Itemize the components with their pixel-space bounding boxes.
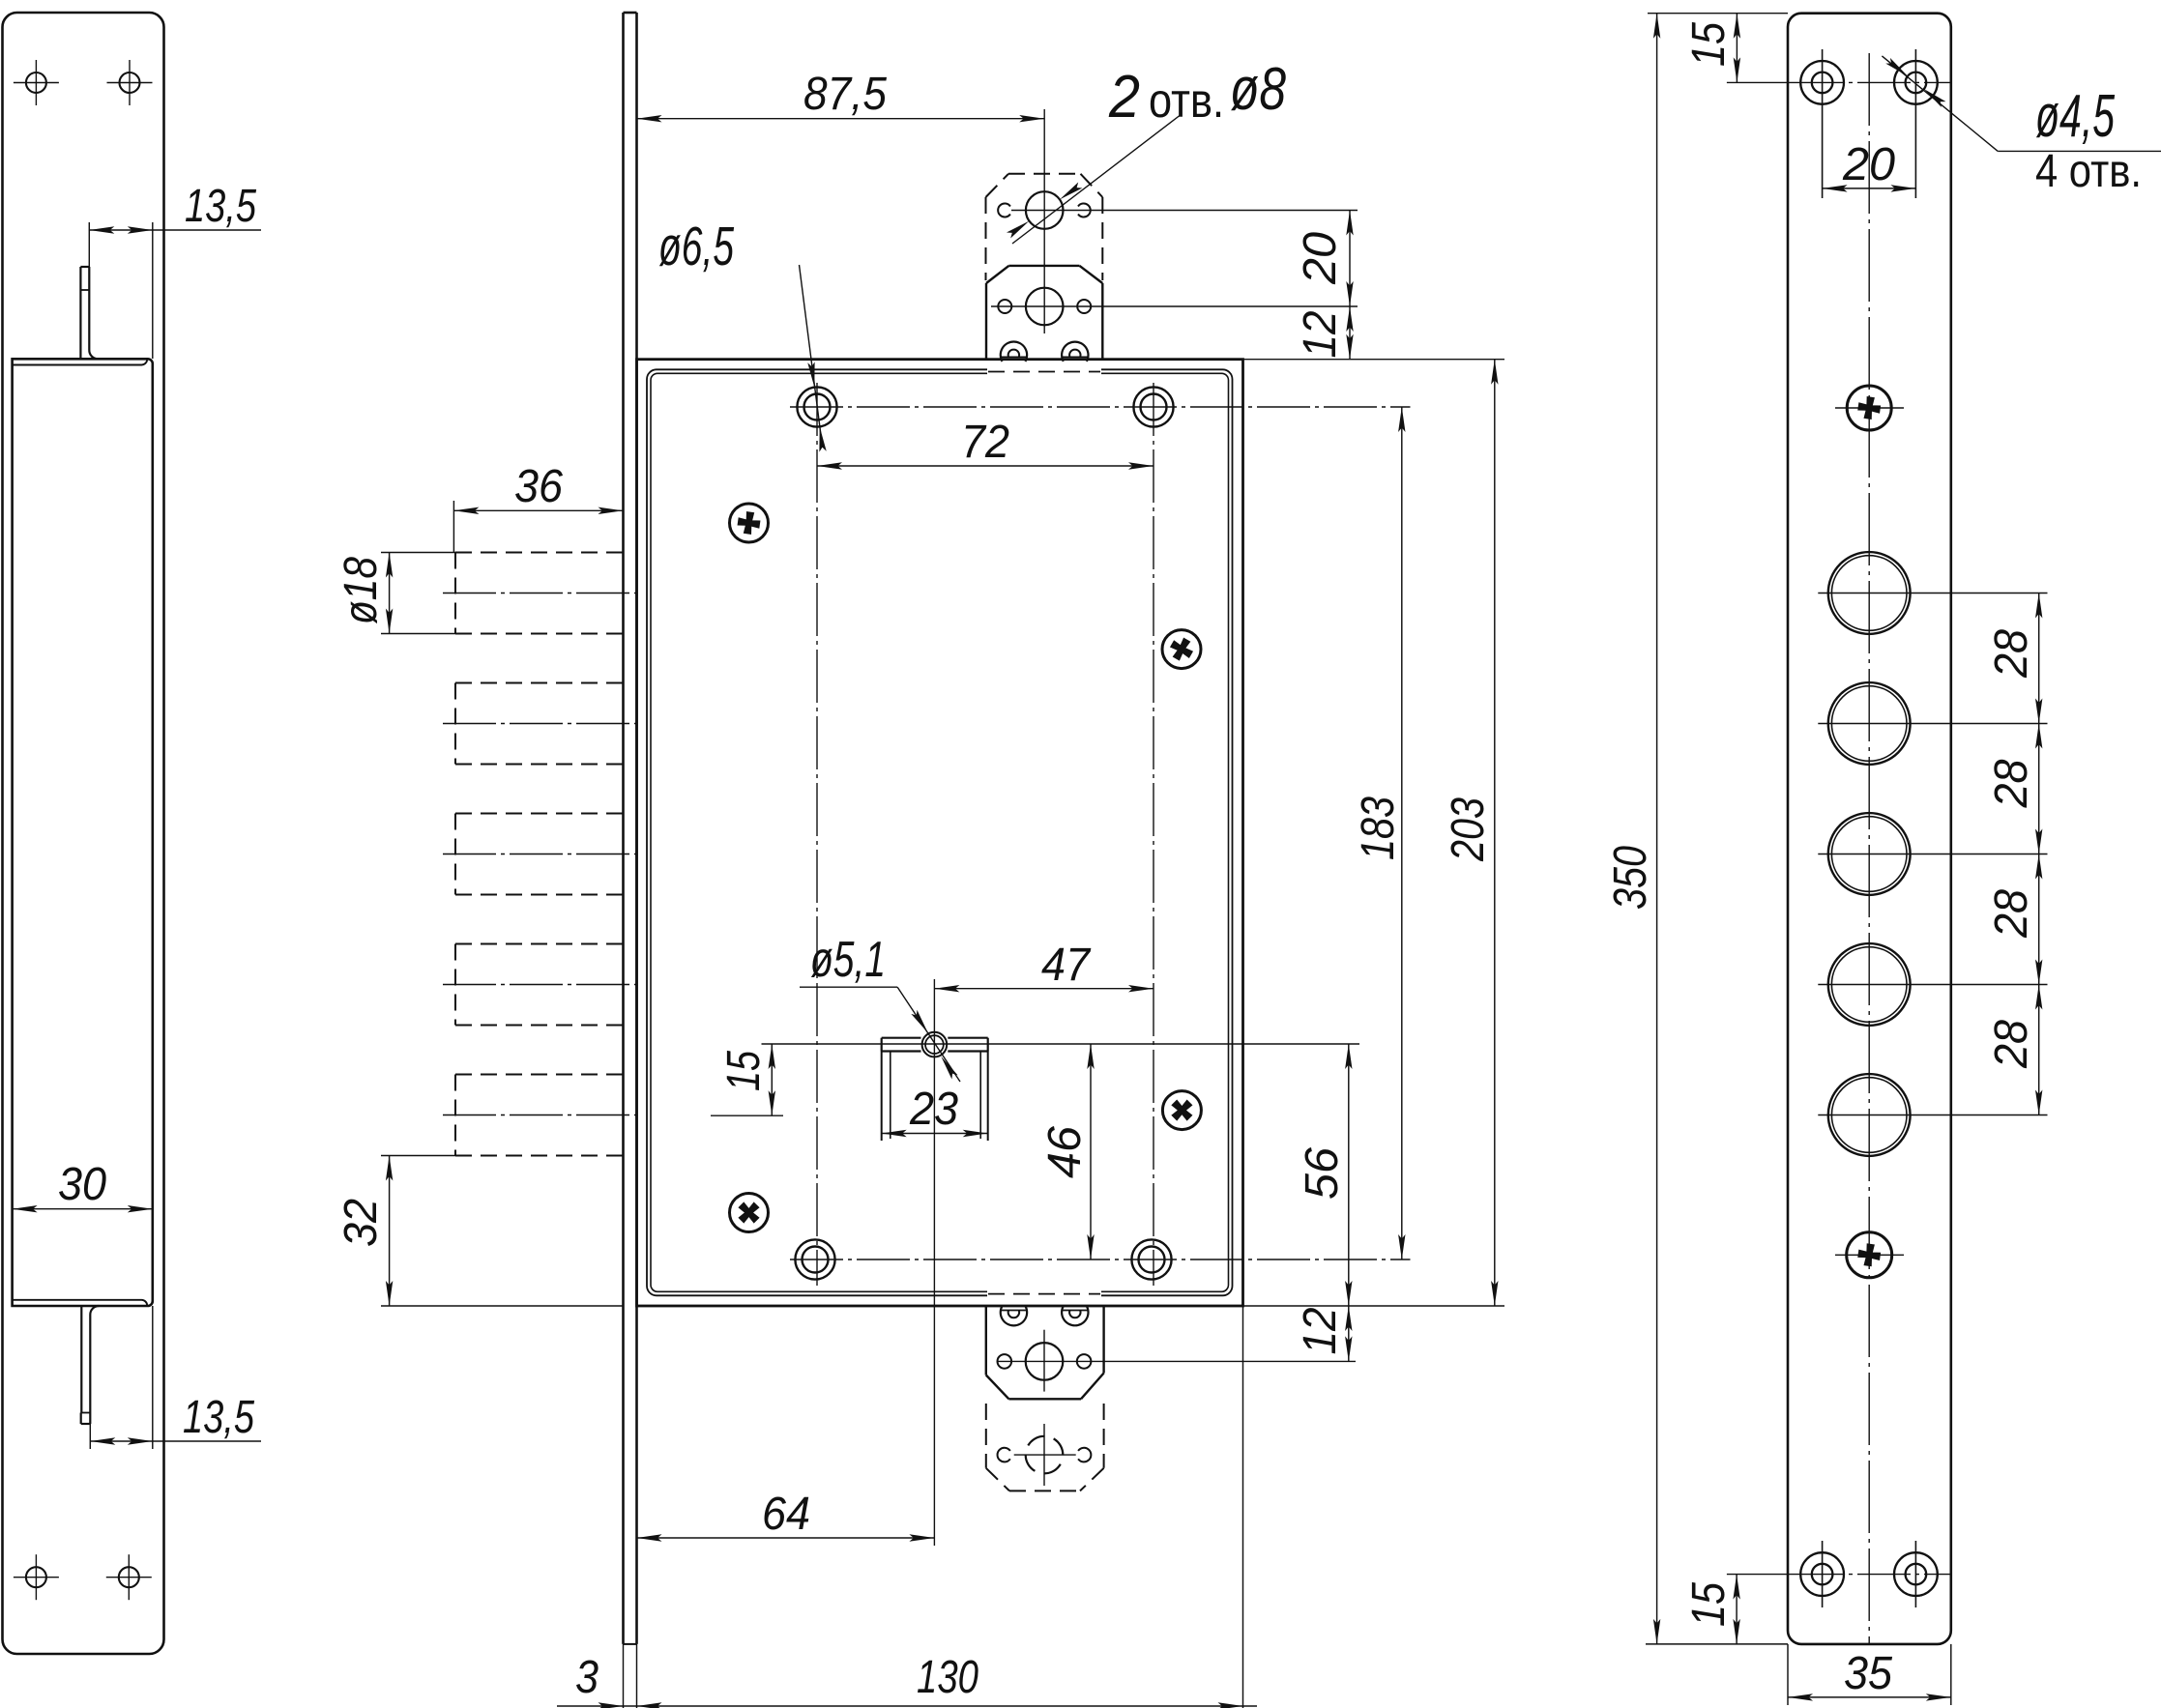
- svg-text:15: 15: [718, 1051, 770, 1091]
- svg-text:20: 20: [1842, 139, 1895, 190]
- svg-text:12: 12: [1295, 1308, 1346, 1355]
- svg-text:130: 130: [917, 1652, 978, 1703]
- svg-text:23: 23: [909, 1084, 958, 1135]
- svg-text:ø6,5: ø6,5: [658, 216, 734, 277]
- svg-text:47: 47: [1041, 940, 1092, 991]
- svg-text:30: 30: [58, 1159, 106, 1210]
- svg-text:ø4,5: ø4,5: [2035, 83, 2115, 150]
- svg-text:28: 28: [1986, 889, 2037, 939]
- svg-text:28: 28: [1986, 759, 2037, 808]
- svg-text:4 отв.: 4 отв.: [2035, 146, 2142, 197]
- svg-text:28: 28: [1986, 1020, 2037, 1069]
- svg-text:15: 15: [1683, 1582, 1735, 1627]
- svg-text:3: 3: [575, 1652, 599, 1703]
- svg-text:64: 64: [762, 1489, 810, 1540]
- svg-text:87,5: 87,5: [803, 69, 887, 120]
- svg-text:28: 28: [1986, 629, 2037, 679]
- svg-text:72: 72: [961, 417, 1009, 468]
- svg-text:20: 20: [1295, 232, 1346, 285]
- svg-text:ø8: ø8: [1230, 56, 1286, 123]
- svg-text:13,5: 13,5: [185, 181, 256, 232]
- svg-text:32: 32: [336, 1199, 387, 1247]
- svg-text:12: 12: [1295, 311, 1346, 359]
- svg-text:отв.: отв.: [1149, 73, 1224, 128]
- svg-text:203: 203: [1443, 797, 1494, 862]
- svg-text:ø18: ø18: [336, 557, 387, 624]
- svg-text:15: 15: [1683, 22, 1735, 67]
- svg-text:36: 36: [514, 461, 563, 512]
- svg-text:350: 350: [1605, 846, 1656, 910]
- svg-text:13,5: 13,5: [183, 1392, 254, 1443]
- svg-text:46: 46: [1039, 1126, 1091, 1178]
- svg-text:56: 56: [1297, 1147, 1348, 1200]
- svg-text:35: 35: [1844, 1648, 1892, 1699]
- svg-text:183: 183: [1353, 796, 1404, 860]
- svg-text:2: 2: [1108, 64, 1140, 130]
- svg-text:ø5,1: ø5,1: [810, 932, 886, 988]
